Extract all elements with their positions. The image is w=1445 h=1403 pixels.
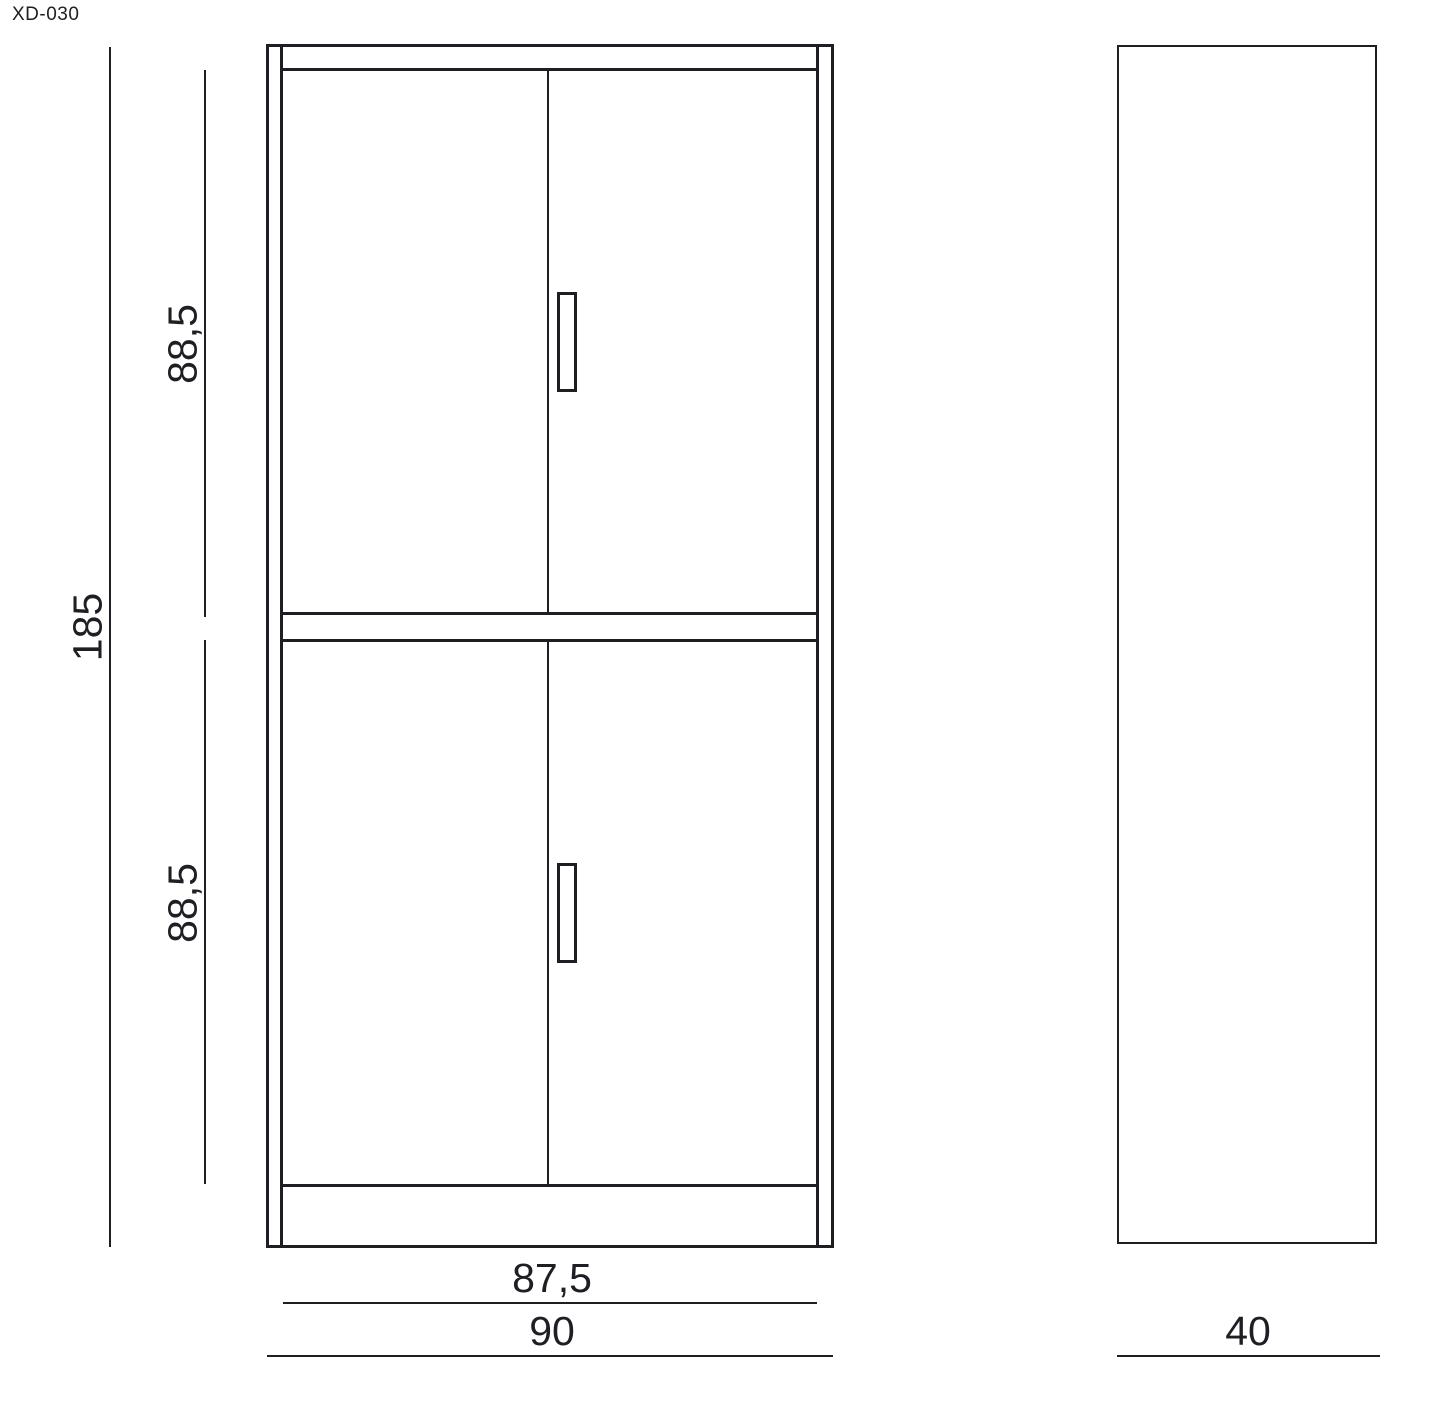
dimension-line-depth: [1117, 1355, 1380, 1357]
technical-drawing: XD-030 185 88,5 88,5 87,5 90 40: [0, 0, 1445, 1403]
dimension-label-depth: 40: [1225, 1311, 1271, 1352]
upper-doors-top-line: [280, 68, 819, 71]
upper-door-handle: [557, 292, 577, 392]
front-outer-left-edge: [266, 44, 269, 1247]
front-right-panel-line: [816, 44, 819, 1247]
front-left-panel-line: [280, 44, 283, 1247]
dimension-label-total-width: 90: [529, 1311, 575, 1352]
lower-doors-split-line: [547, 641, 550, 1186]
front-bottom-edge: [266, 1245, 834, 1248]
drawing-code-label: XD-030: [12, 4, 79, 26]
front-outer-right-edge: [831, 44, 834, 1247]
front-top-edge: [266, 44, 834, 47]
dimension-line-total-width: [267, 1355, 833, 1357]
dimension-label-door-span-width: 87,5: [512, 1258, 592, 1299]
dimension-label-lower-door-height: 88,5: [163, 863, 204, 943]
dimension-label-upper-door-height: 88,5: [163, 304, 204, 384]
dimension-label-total-height: 185: [68, 593, 109, 661]
side-view: [1117, 45, 1377, 1244]
middle-shelf-top-line: [280, 612, 819, 615]
dimension-line-door-span-width: [283, 1302, 817, 1304]
upper-doors-split-line: [547, 69, 550, 614]
lower-door-handle: [557, 863, 577, 963]
lower-doors-bottom-line: [280, 1184, 819, 1187]
middle-shelf-bottom-line: [280, 639, 819, 642]
